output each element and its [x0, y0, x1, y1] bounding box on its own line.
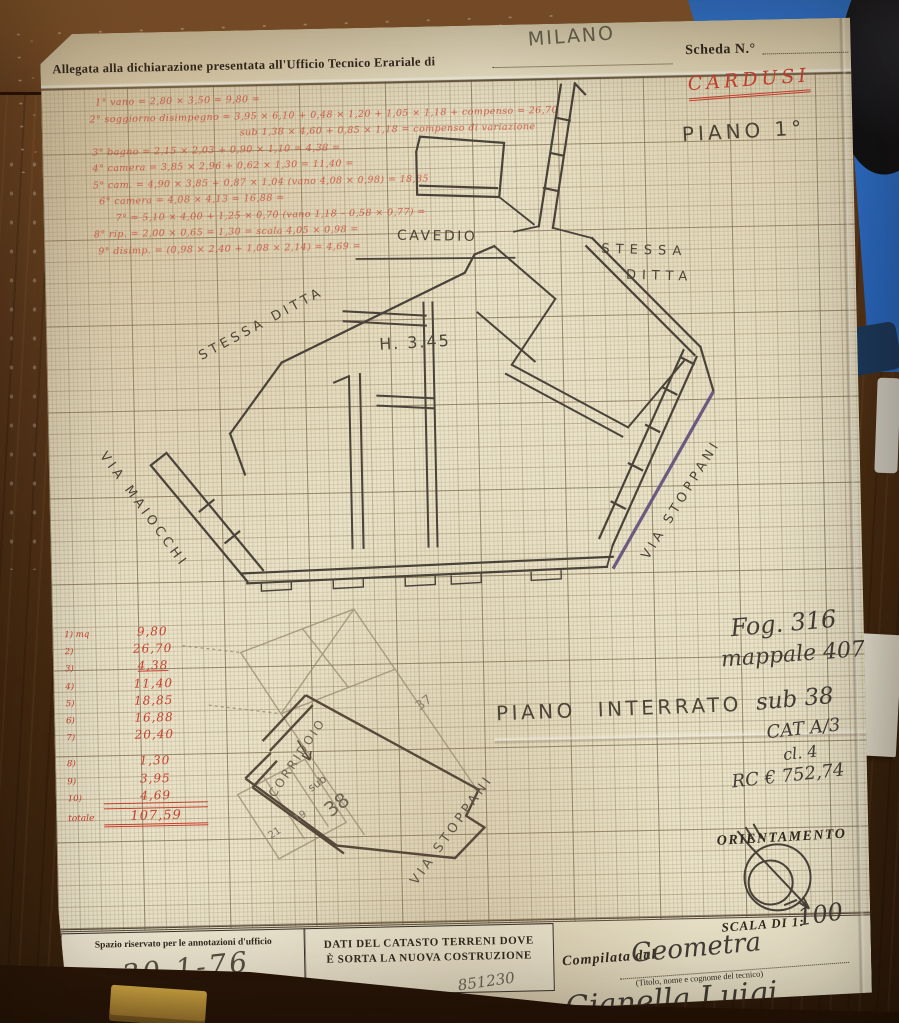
cadastral-sub: sub 38: [755, 679, 875, 716]
red-measurements-column: 1) mq9,80 2)26,70 3)4,38 4)11,40 5)18,85…: [64, 623, 228, 826]
label-stessa-ditta-right: STESSA: [601, 242, 687, 260]
measure-value: 3,95: [103, 770, 207, 786]
measure-label: 5): [66, 698, 102, 709]
label-height: H. 3.45: [379, 331, 451, 354]
measure-value: 20,40: [102, 726, 206, 742]
measure-value: 4,38: [101, 658, 205, 674]
measure-label: 9): [67, 776, 103, 787]
measure-label: 8): [67, 759, 103, 770]
measure-total-label: totale: [68, 813, 104, 824]
measure-value: 16,88: [102, 709, 206, 725]
measure-label: 2): [65, 647, 101, 658]
measure-label: 3): [65, 664, 101, 675]
measure-value: 9,80: [100, 623, 204, 639]
cadastral-reference-block: Fog. 316 mappale 407 sub 38 CAT A/3 cl. …: [702, 606, 876, 787]
measure-value: 18,85: [102, 692, 206, 708]
measure-value: 11,40: [101, 675, 205, 691]
plastic-bag-edge: [874, 378, 899, 474]
measure-label: 1) mq: [64, 629, 100, 640]
label-stessa-ditta-right-2: DITTA: [626, 268, 694, 285]
measure-label: 10): [68, 793, 104, 804]
measure-total-value: 107,59: [104, 806, 208, 827]
measure-value: 1,30: [103, 753, 207, 769]
measure-label: 4): [65, 681, 101, 692]
measure-value: 26,70: [100, 640, 204, 656]
measure-value: 4,69: [104, 787, 208, 804]
annotations-office-label: Spazio riservato per le annotazioni d'uf…: [62, 929, 305, 951]
yellow-ruler-object: [109, 985, 207, 1023]
measure-label: 7): [66, 733, 102, 744]
photo-of-cadastral-plan: Allegata alla dichiarazione presentata a…: [0, 0, 899, 1023]
cadastral-form-sheet: Allegata alla dichiarazione presentata a…: [40, 18, 873, 1023]
label-cavedio: CAVEDIO: [397, 228, 478, 245]
cadastral-mappale: mappale 407: [720, 636, 873, 672]
measure-label: 6): [66, 715, 102, 726]
